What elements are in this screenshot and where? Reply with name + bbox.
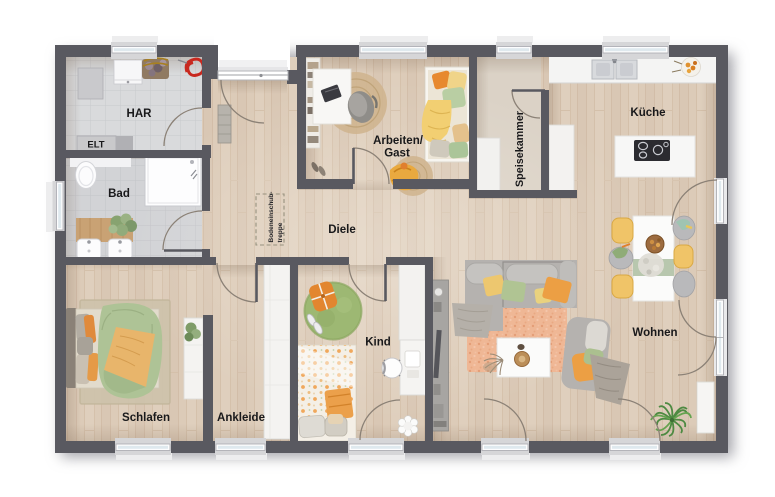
- svg-text:Küche: Küche: [630, 107, 665, 119]
- svg-text:treppe: treppe: [277, 222, 284, 242]
- svg-text:ELT: ELT: [87, 140, 104, 151]
- svg-text:Bodeneinschub-: Bodeneinschub-: [268, 192, 275, 243]
- svg-text:Diele: Diele: [328, 224, 356, 236]
- svg-text:Wohnen: Wohnen: [632, 327, 677, 339]
- svg-text:Kind: Kind: [365, 337, 391, 349]
- svg-text:Schlafen: Schlafen: [122, 412, 170, 424]
- svg-text:Gast: Gast: [384, 148, 410, 160]
- svg-text:Speisekammer: Speisekammer: [514, 110, 526, 187]
- svg-text:Arbeiten/: Arbeiten/: [373, 135, 424, 147]
- svg-text:Bad: Bad: [108, 188, 130, 200]
- svg-text:HAR: HAR: [127, 108, 153, 120]
- svg-text:Ankleide: Ankleide: [217, 412, 265, 424]
